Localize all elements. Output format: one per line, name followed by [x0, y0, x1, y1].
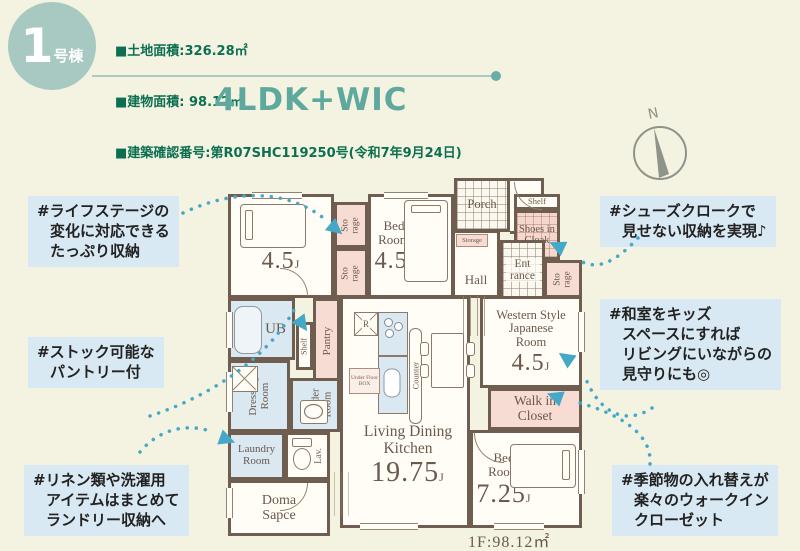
callout-laundry-line: アイテムはまとめて	[33, 490, 180, 510]
callout-laundry-line: #リネン類や洗濯用	[33, 470, 180, 490]
room-size: 19.75J	[350, 459, 466, 487]
chair-icon	[420, 342, 429, 356]
room-storage-b: Sto rage	[334, 248, 368, 298]
building-number: 1	[21, 23, 54, 70]
under-floor-box-label: Under Floor BOX	[349, 368, 380, 394]
compass: N	[624, 108, 696, 186]
window	[226, 372, 233, 412]
refrigerator-label: R	[362, 319, 370, 329]
room-label: Shelf	[300, 329, 309, 363]
stairs-hatch	[463, 296, 489, 336]
callout-wic: #季節物の入れ替えが 楽々のウォークイン クローゼット	[612, 465, 778, 536]
room-pantry: Pantry	[313, 298, 340, 384]
callout-pantry-line: #ストック可能な	[37, 342, 155, 362]
floor-area-text: 1F:98.12㎡	[468, 528, 550, 551]
room-label: UB	[265, 321, 286, 337]
window	[578, 450, 585, 494]
burner-icon	[394, 322, 403, 331]
callout-storage: #ライフステージの 変化に対応できる たっぷり収納	[28, 196, 179, 267]
burner-icon	[385, 329, 394, 338]
room-entrance: Ent rance	[500, 240, 545, 300]
window	[578, 312, 585, 352]
window	[384, 192, 428, 199]
chair-icon	[466, 364, 475, 378]
dining-table-icon	[431, 333, 464, 388]
room-japanese: Western Style Japanese Room 4.5J	[480, 296, 582, 388]
room-label: Sto rage	[341, 260, 362, 286]
callout-shoes-line: 見せない収納を実現♪	[609, 221, 767, 241]
room-label: Lav.	[314, 443, 324, 469]
kitchen-sink-icon	[378, 356, 408, 414]
callout-tatami: #和室をキッズ スペースにすれば リビングにいながらの 見守りにも◎	[600, 299, 781, 390]
step-hatch	[334, 472, 350, 516]
plan-type-title: 4LDK+WIC	[214, 82, 408, 118]
toilet-tank-icon	[292, 438, 312, 447]
chair-icon	[420, 364, 429, 378]
pillow-icon	[562, 450, 570, 480]
callout-tatami-line: #和室をキッズ	[609, 304, 772, 324]
room-label: Ent rance	[506, 258, 540, 283]
room-label: Sto rage	[553, 266, 574, 292]
pillow-icon	[245, 210, 253, 240]
callout-shoes-cloak: #シューズクロークで 見せない収納を実現♪	[600, 196, 776, 247]
room-shelf-pantry: Shelf	[296, 322, 313, 370]
room-storage-c: Sto rage	[544, 260, 582, 298]
callout-tatami-line: スペースにすれば	[609, 324, 772, 344]
refrigerator-icon: R	[354, 312, 378, 336]
bathtub-icon	[234, 306, 262, 354]
room-ldk-label: Living Dining Kitchen 19.75J	[350, 424, 466, 487]
room-label: Laundry Room	[232, 444, 282, 468]
room-label: Pantry	[320, 311, 332, 371]
building-number-suffix: 号棟	[53, 45, 83, 66]
room-storage-a: Sto rage	[334, 202, 368, 248]
window	[226, 488, 233, 518]
window	[252, 192, 302, 199]
callout-wic-line: #季節物の入れ替えが	[621, 470, 769, 490]
callout-laundry: #リネン類や洗濯用 アイテムはまとめて ランドリー収納へ	[24, 465, 189, 536]
chair-icon	[466, 342, 475, 356]
callout-shoes-line: #シューズクロークで	[609, 201, 767, 221]
room-label: Sto rage	[341, 212, 362, 238]
room-laundry: Laundry Room	[228, 432, 285, 480]
room-label: Counter	[411, 348, 420, 404]
callout-wic-line: クローゼット	[621, 510, 769, 530]
building-number-badge: 1 号棟	[8, 2, 96, 90]
callout-pantry: #ストック可能な パントリー付	[28, 337, 164, 388]
room-label: Porch	[467, 198, 496, 212]
confirmation-number: ■建築確認番号:第R07SHC119250号(令和7年9月24日)	[115, 145, 462, 162]
room-size: 4.5J	[512, 351, 551, 375]
window	[360, 523, 418, 530]
window	[226, 312, 233, 348]
room-doma: Doma Sapce	[228, 480, 330, 536]
callout-tatami-line: リビングにいながらの	[609, 344, 772, 364]
callout-laundry-line: ランドリー収納へ	[33, 510, 180, 530]
room-label: Hall	[465, 273, 487, 287]
pillow-icon	[411, 205, 441, 213]
room-walk-in-closet: Walk in Closet	[488, 388, 582, 430]
room-label: Western Style Japanese Room	[495, 309, 567, 350]
callout-tatami-line: 見守りにも◎	[609, 364, 772, 384]
flyer-canvas: 1 号棟 ■土地面積:326.28㎡ ■建物面積: 98.12㎡ ■建築確認番号…	[0, 0, 800, 551]
room-label: Walk in Closet	[504, 394, 566, 423]
burner-icon	[384, 318, 393, 327]
washer-icon	[232, 366, 258, 392]
callout-storage-line: 変化に対応できる	[37, 221, 170, 241]
sink-icon	[300, 400, 328, 424]
room-porch: Porch	[454, 178, 510, 232]
floor-plan: Bed Room 4.5J Sto rage Sto rage Bed Room…	[222, 172, 590, 538]
toilet-bowl-icon	[293, 448, 311, 470]
room-hall-storage: Storage	[456, 234, 488, 247]
callout-storage-line: たっぷり収納	[37, 241, 170, 261]
callout-pantry-line: パントリー付	[37, 362, 155, 382]
callout-wic-line: 楽々のウォークイン	[621, 490, 769, 510]
callout-storage-line: #ライフステージの	[37, 201, 170, 221]
header-divider-line	[92, 75, 492, 77]
header-divider-dot	[491, 71, 501, 81]
land-area: ■土地面積:326.28㎡	[115, 43, 462, 60]
